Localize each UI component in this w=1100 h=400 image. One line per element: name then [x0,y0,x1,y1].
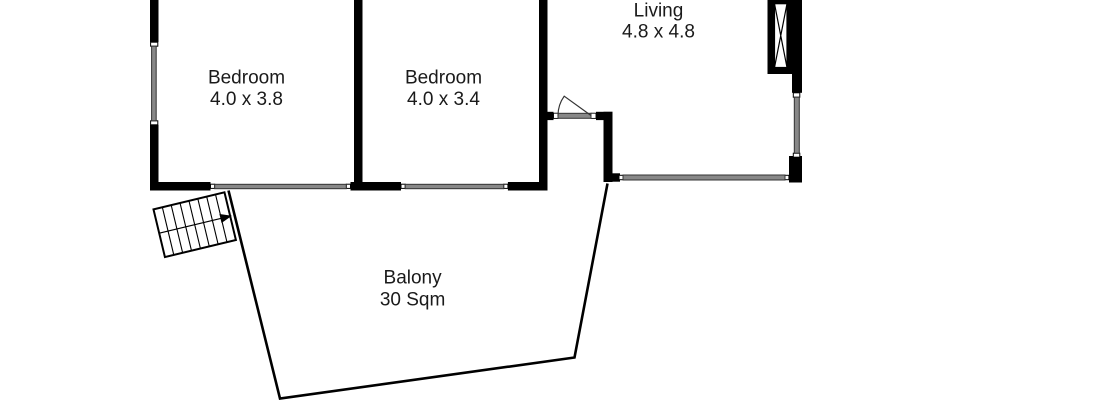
svg-text:Living: Living [634,1,684,22]
svg-text:Balony: Balony [384,267,443,288]
svg-text:Bedroom: Bedroom [405,67,482,88]
svg-text:4.8 x 4.8: 4.8 x 4.8 [622,22,695,43]
svg-text:4.0 x 3.8: 4.0 x 3.8 [210,89,283,110]
svg-text:30 Sqm: 30 Sqm [380,289,445,310]
svg-text:Bedroom: Bedroom [208,67,285,88]
svg-text:4.0 x 3.4: 4.0 x 3.4 [407,89,480,110]
